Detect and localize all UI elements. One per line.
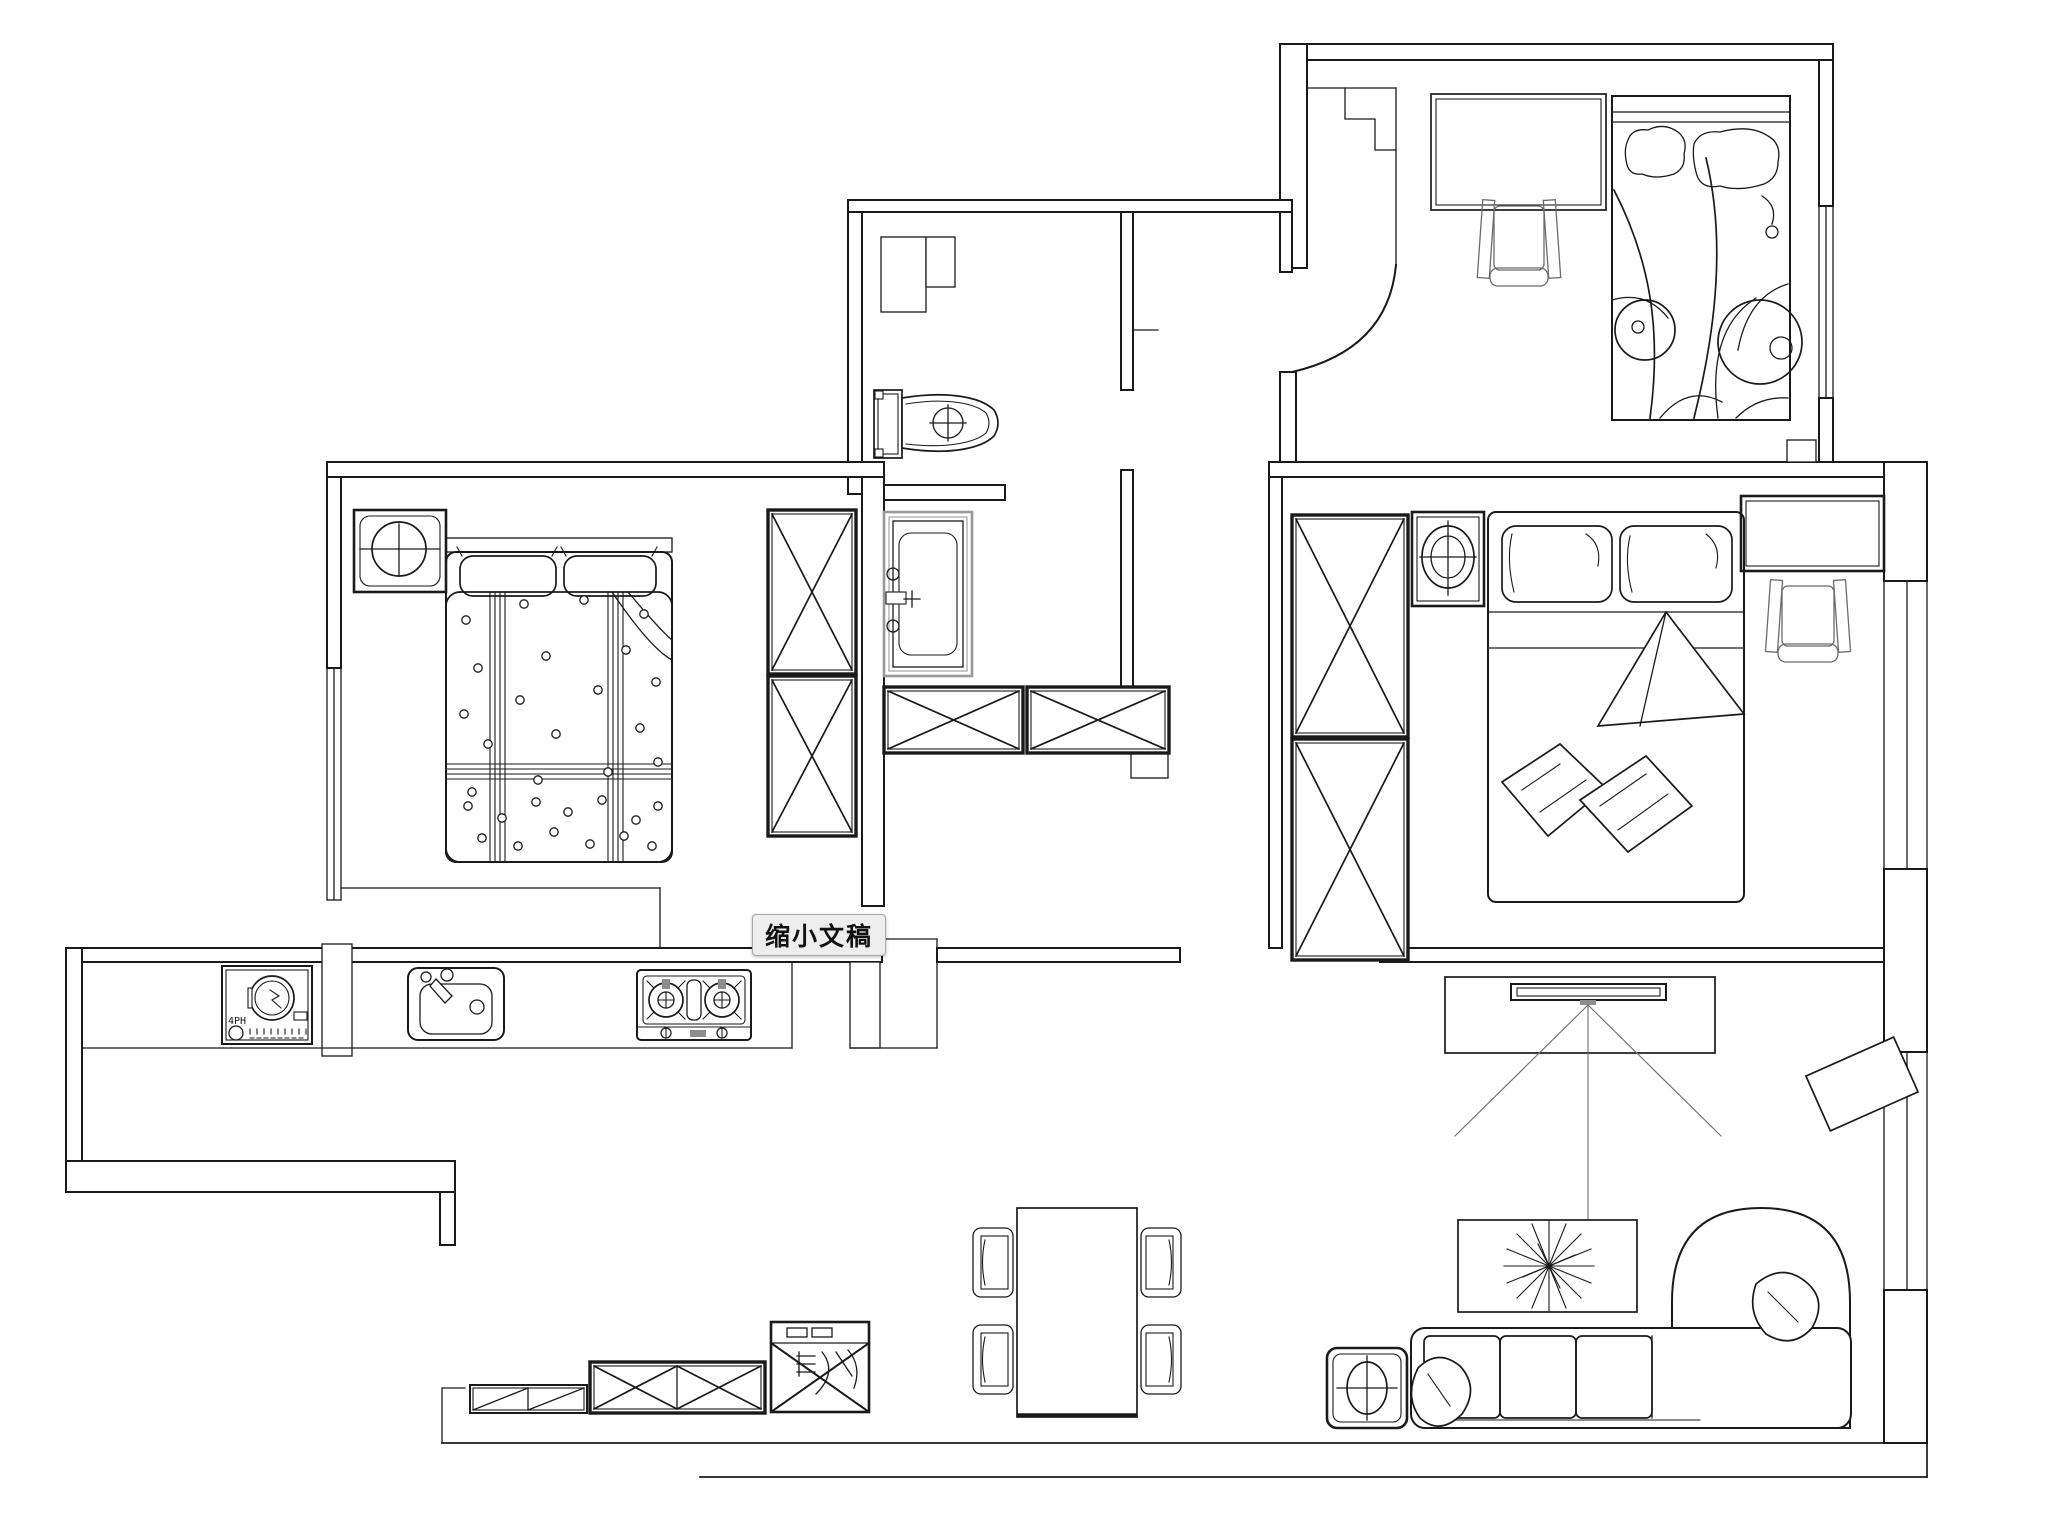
window-top-right-east (1819, 206, 1833, 398)
dining-chair (1141, 1228, 1181, 1297)
single-bed-swirl (1612, 96, 1802, 420)
window-master-east (1884, 581, 1927, 869)
desk-chair-master (1766, 580, 1851, 662)
desk-chair (1477, 200, 1560, 286)
zoom-out-tooltip: 缩小文稿 (752, 914, 886, 956)
plant-icon (1504, 1221, 1594, 1311)
curved-entry-wall (1292, 265, 1396, 372)
living-room (470, 977, 1918, 1428)
wardrobe-master (1292, 515, 1408, 960)
window-left-bedroom-west (327, 668, 341, 900)
lamp-nightstand (1412, 512, 1484, 606)
bedroom-top-right (1431, 94, 1802, 420)
lamp-side-table (354, 510, 446, 592)
double-bed-dotted (446, 538, 672, 862)
side-table-lamp (1327, 1348, 1407, 1428)
bedroom-left (354, 510, 856, 862)
hall-cabinet-x2 (884, 687, 1169, 753)
low-sideboard (470, 1385, 587, 1413)
toilet (874, 390, 998, 458)
dining-area (973, 1208, 1181, 1417)
dining-chair (1141, 1325, 1181, 1394)
kitchen: 4PH (222, 966, 751, 1044)
washer-model-label: 4PH (228, 1016, 246, 1027)
kitchen-sink (408, 968, 504, 1040)
coffee-table (1458, 1220, 1637, 1312)
desk (1431, 94, 1606, 210)
gas-stove (637, 970, 751, 1040)
appliance-cabinet (771, 1322, 869, 1412)
dining-chair (973, 1228, 1013, 1297)
bathtub (884, 512, 972, 676)
desk-master (1741, 496, 1884, 571)
tv (1511, 984, 1666, 1005)
washing-machine: 4PH (222, 966, 312, 1044)
dining-chair (973, 1325, 1013, 1394)
floor-plan-page: 4PH (0, 0, 2068, 1514)
bedroom-right-master (1292, 496, 1884, 960)
zoom-out-tooltip-label: 缩小文稿 (765, 917, 873, 953)
wardrobe-left (768, 510, 856, 836)
double-bed-master (1488, 512, 1744, 902)
floor-plan-canvas: 4PH (0, 0, 2068, 1514)
sideboard-x2 (590, 1362, 765, 1413)
dining-table (1017, 1208, 1137, 1417)
